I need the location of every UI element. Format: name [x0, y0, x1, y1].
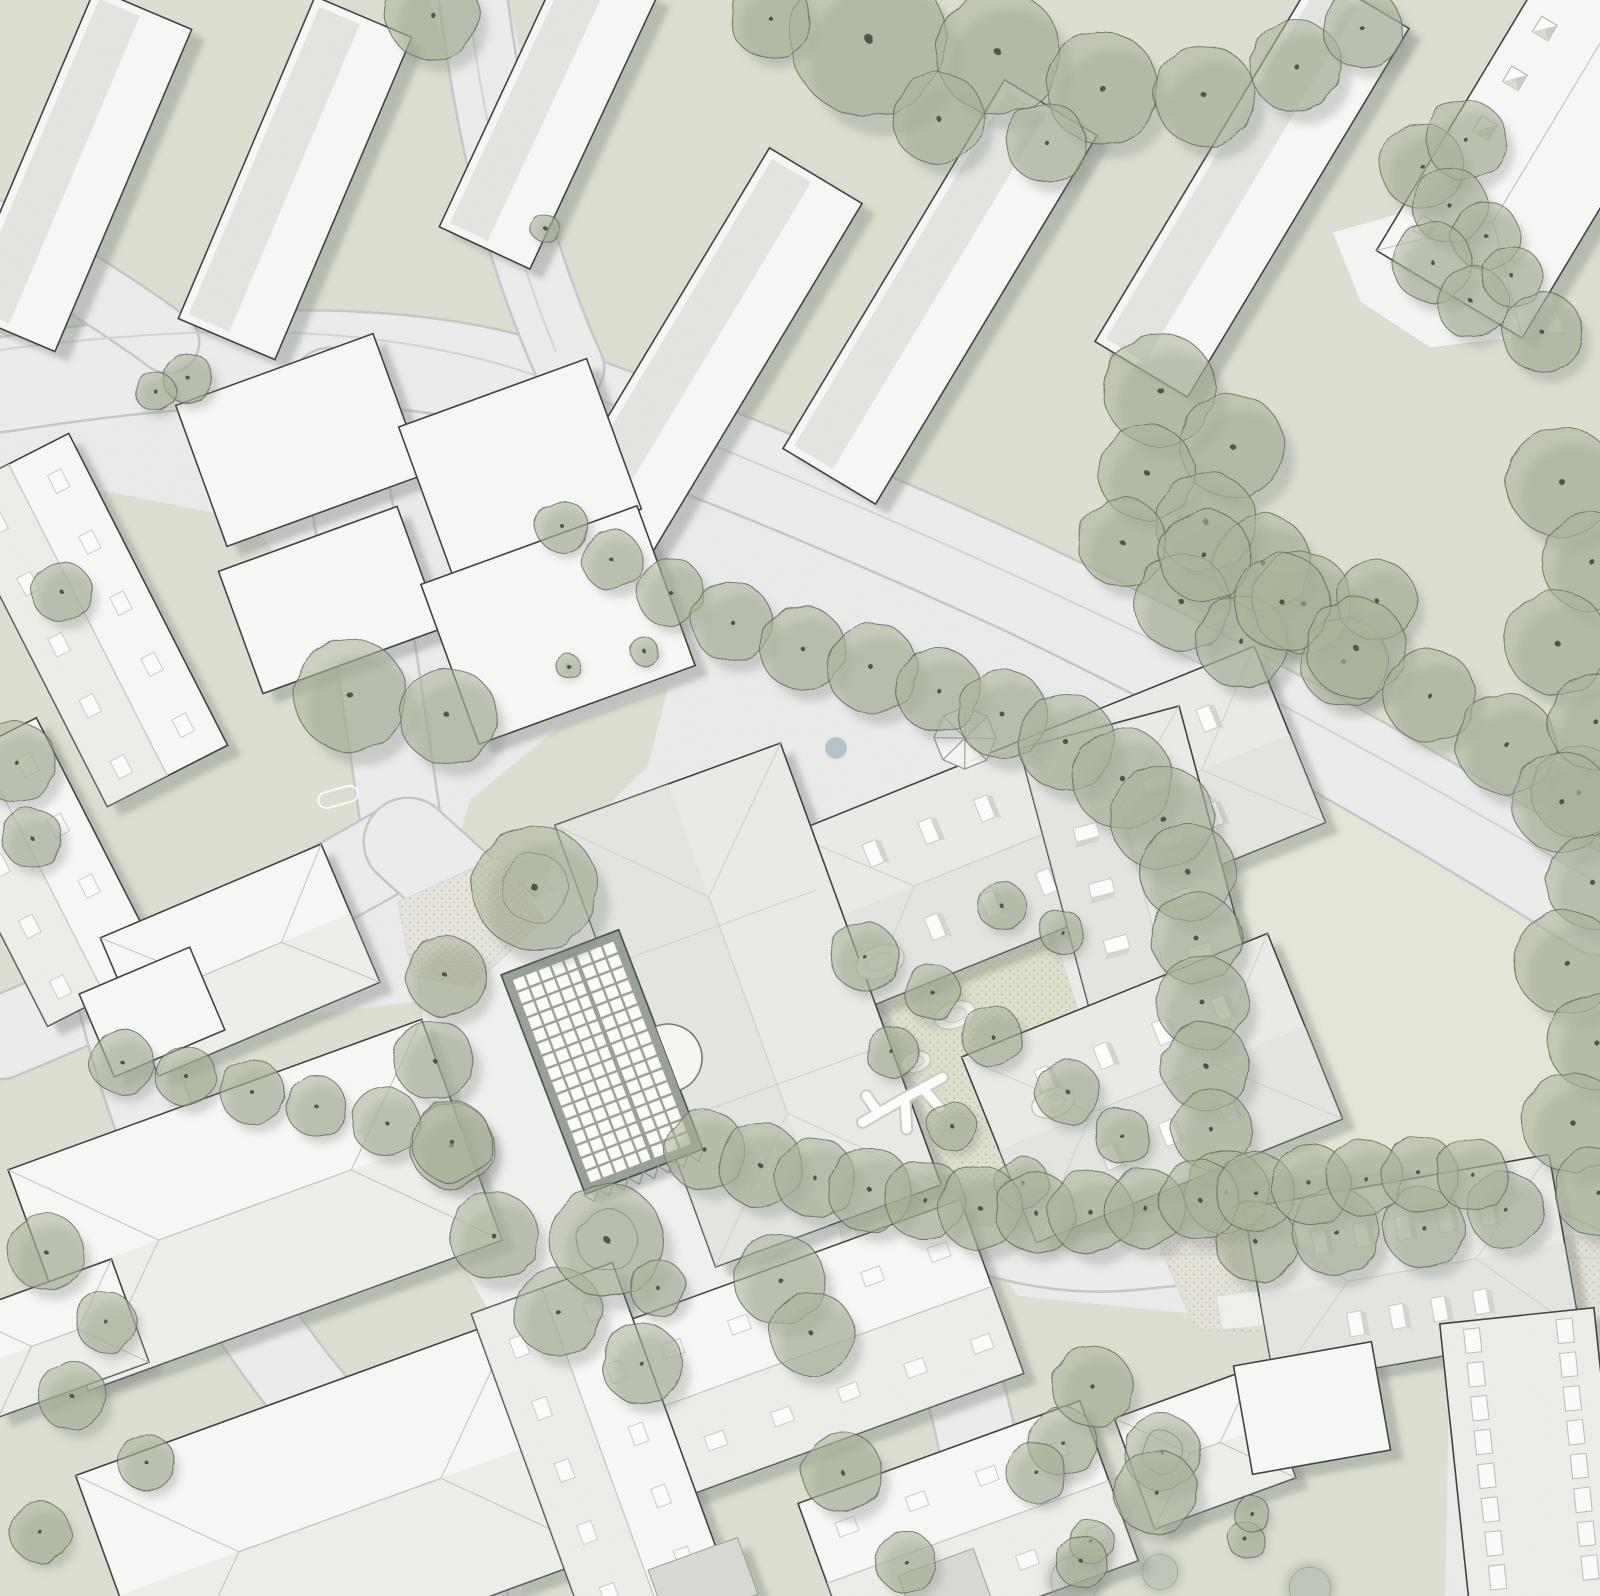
site-plan-canvas	[0, 0, 1600, 1596]
paper-grain-overlay	[0, 0, 1600, 1596]
site-plan-svg	[0, 0, 1600, 1596]
